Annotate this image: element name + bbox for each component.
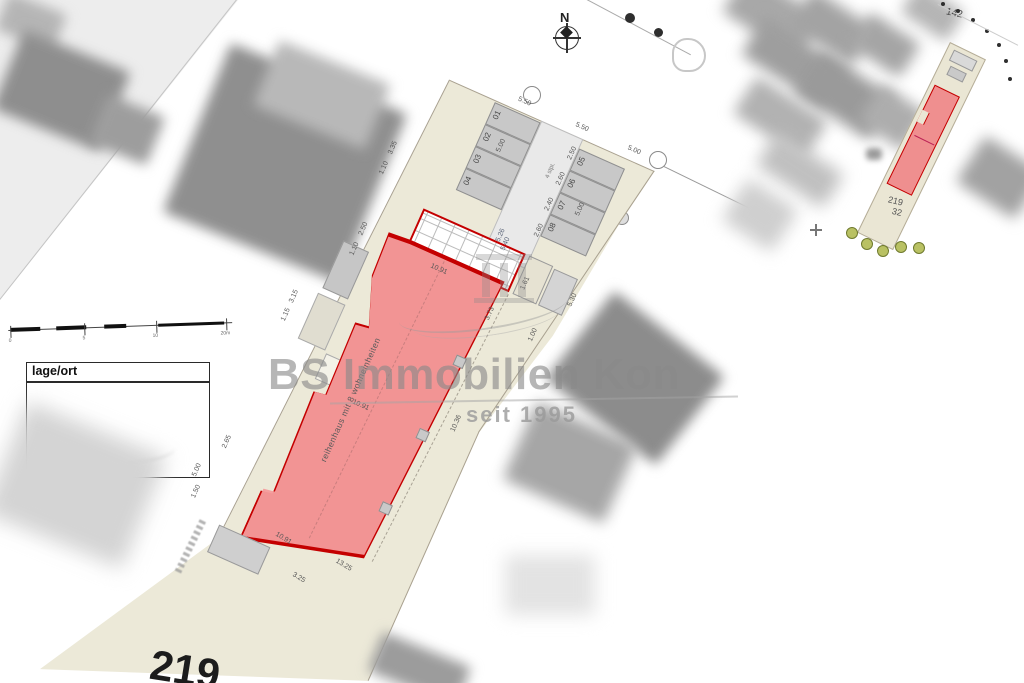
stall-number: 03 <box>472 153 483 164</box>
stall-number: 02 <box>482 131 493 142</box>
dimension-label: 5.50 <box>574 121 589 133</box>
stall-number: 07 <box>557 200 568 211</box>
dimension-label: 2.65 <box>221 434 233 449</box>
blurred-building <box>505 555 595 615</box>
dimension-label: 1.15 <box>280 307 292 322</box>
scale-tick-label: 0 <box>9 338 12 344</box>
site-plan-canvas: 4 stpl. 01 02 03 04 05 06 07 08 <box>0 0 1024 683</box>
tree-icon <box>861 238 873 250</box>
route-dot <box>997 43 1001 47</box>
boundary-point-dot <box>654 28 663 37</box>
blurred-building <box>368 632 472 683</box>
north-arrow: N <box>548 10 588 60</box>
blurred-building <box>956 135 1024 219</box>
scale-tick-label: 10 <box>152 333 158 339</box>
scale-tick-label: 20m <box>220 330 230 336</box>
blurred-label <box>866 148 882 160</box>
tree-icon <box>846 227 858 239</box>
blurred-building <box>900 0 965 42</box>
stall-number: 04 <box>462 175 473 186</box>
route-dot <box>1004 59 1008 63</box>
scale-bar: 0 5 10 20m <box>8 314 233 344</box>
stall-number: 06 <box>566 178 577 189</box>
route-dot <box>1008 77 1012 81</box>
tree-icon <box>895 241 907 253</box>
inset-parcel <box>857 42 986 250</box>
cross-marker <box>810 224 822 236</box>
scale-tick-label: 5 <box>83 335 86 341</box>
boundary-point-dot <box>625 13 635 23</box>
blurred-building <box>721 178 799 253</box>
stall-number: 08 <box>547 222 558 233</box>
inset-structure <box>946 66 967 83</box>
inset-overview-map: 142 219 32 <box>728 0 1024 290</box>
dimension-label: 3.15 <box>288 289 300 304</box>
tree-outline <box>672 38 706 72</box>
dimension-label: 1.50 <box>190 484 202 499</box>
tree-icon <box>877 245 889 257</box>
stall-number: 01 <box>492 110 503 121</box>
legend-title: lage/ort <box>32 364 77 378</box>
route-dot <box>956 9 960 13</box>
dimension-label: 5.00 <box>626 144 641 156</box>
stall-number: 05 <box>576 156 587 167</box>
tree-icon <box>913 242 925 254</box>
north-label: N <box>560 10 569 25</box>
compass-rose <box>555 26 579 50</box>
